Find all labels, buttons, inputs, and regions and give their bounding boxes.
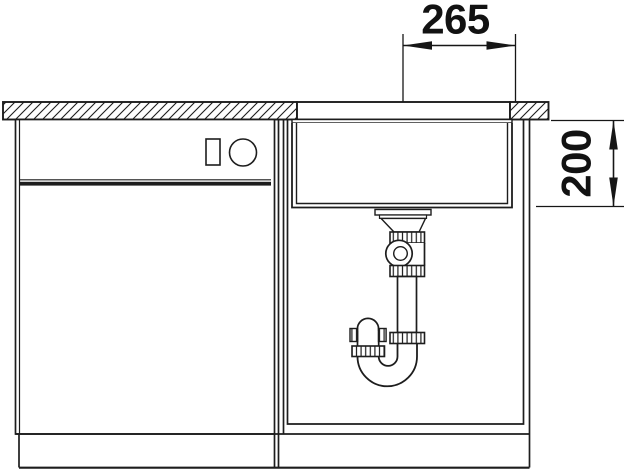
arrowhead-up bbox=[609, 121, 618, 150]
riser-side-nut-left bbox=[350, 329, 358, 342]
sink-installation-drawing: 265 200 bbox=[0, 0, 625, 474]
switch-symbol bbox=[206, 139, 220, 165]
bowl-outer-wall bbox=[292, 123, 512, 208]
riser-side-nut-right bbox=[379, 329, 387, 342]
countertop-cutout-section bbox=[297, 102, 510, 120]
elbow-loop-inner bbox=[394, 247, 408, 261]
drawer-divider-bar bbox=[20, 182, 271, 186]
arrowhead-down bbox=[609, 178, 618, 207]
tailpipe bbox=[398, 277, 417, 333]
countertop-right-section bbox=[510, 102, 549, 120]
elbow-lower-nut bbox=[390, 266, 425, 277]
bowl-rim bbox=[292, 120, 512, 124]
arrowhead-right bbox=[487, 41, 516, 50]
dimension-top-label: 265 bbox=[421, 0, 490, 43]
riser-union-nut bbox=[352, 346, 385, 357]
riser-cap bbox=[357, 318, 378, 331]
sink-bowl bbox=[292, 120, 512, 208]
knob-symbol bbox=[230, 139, 257, 166]
drawing-canvas: 265 200 bbox=[0, 0, 625, 474]
countertop bbox=[3, 102, 549, 120]
flange-plate bbox=[375, 210, 431, 216]
left-cabinet bbox=[16, 120, 275, 435]
flange-cup bbox=[381, 218, 426, 232]
dimension-side-label: 200 bbox=[553, 129, 600, 198]
dimension-top: 265 bbox=[403, 0, 516, 102]
siphon-trap bbox=[350, 240, 425, 386]
dimension-side: 200 bbox=[536, 121, 624, 207]
drain-flange bbox=[375, 210, 431, 244]
tailpipe-nut bbox=[390, 333, 425, 344]
countertop-left-section bbox=[3, 102, 297, 120]
left-cabinet-body bbox=[16, 120, 275, 435]
plinth bbox=[16, 434, 530, 468]
